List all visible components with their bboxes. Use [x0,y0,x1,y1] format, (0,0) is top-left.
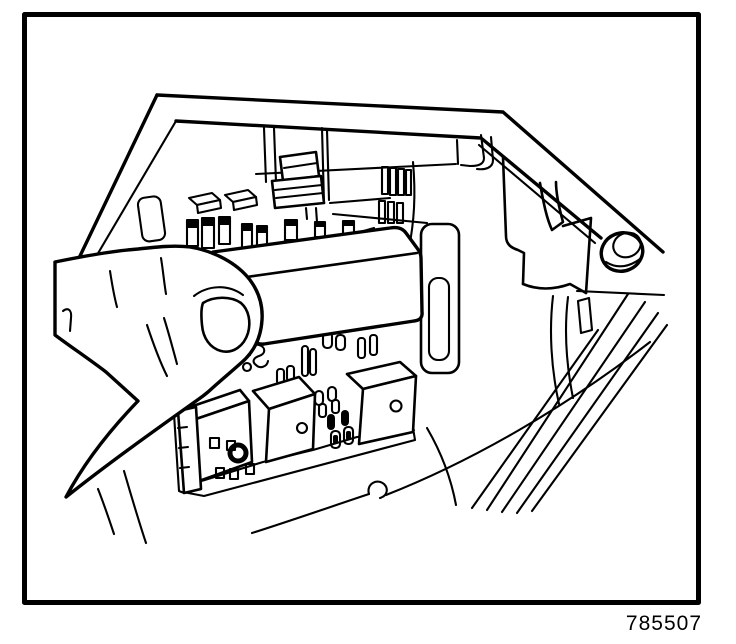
rim-corner-post [457,140,458,164]
thumbnail [201,298,249,352]
handle-slot [421,224,459,373]
hatching [472,294,667,513]
fuse-2 [225,190,257,210]
figure: 785507 [0,0,736,644]
cowl-line-left [252,494,369,533]
right-terminal-bars [379,167,411,223]
gusset-right-arm [563,218,591,293]
left-rim-slot [137,196,166,243]
relay-right [347,362,416,444]
figure-number: 785507 [626,612,702,636]
fuse-1 [189,193,221,213]
technical-illustration [0,0,736,644]
finger-lines [98,471,146,543]
housing-rim-double-line [479,145,595,243]
gusset-left-arm [503,157,524,284]
housing-left-edge [80,95,157,256]
wire-clip [368,482,386,498]
relay-stack [264,128,329,222]
cowl-line-right [386,342,650,495]
right-wall-bottom [577,291,664,295]
relay-middle [253,377,315,462]
wall-tab-1 [461,135,484,166]
right-wall-slot [578,298,592,333]
mounting-bracket [174,407,201,493]
